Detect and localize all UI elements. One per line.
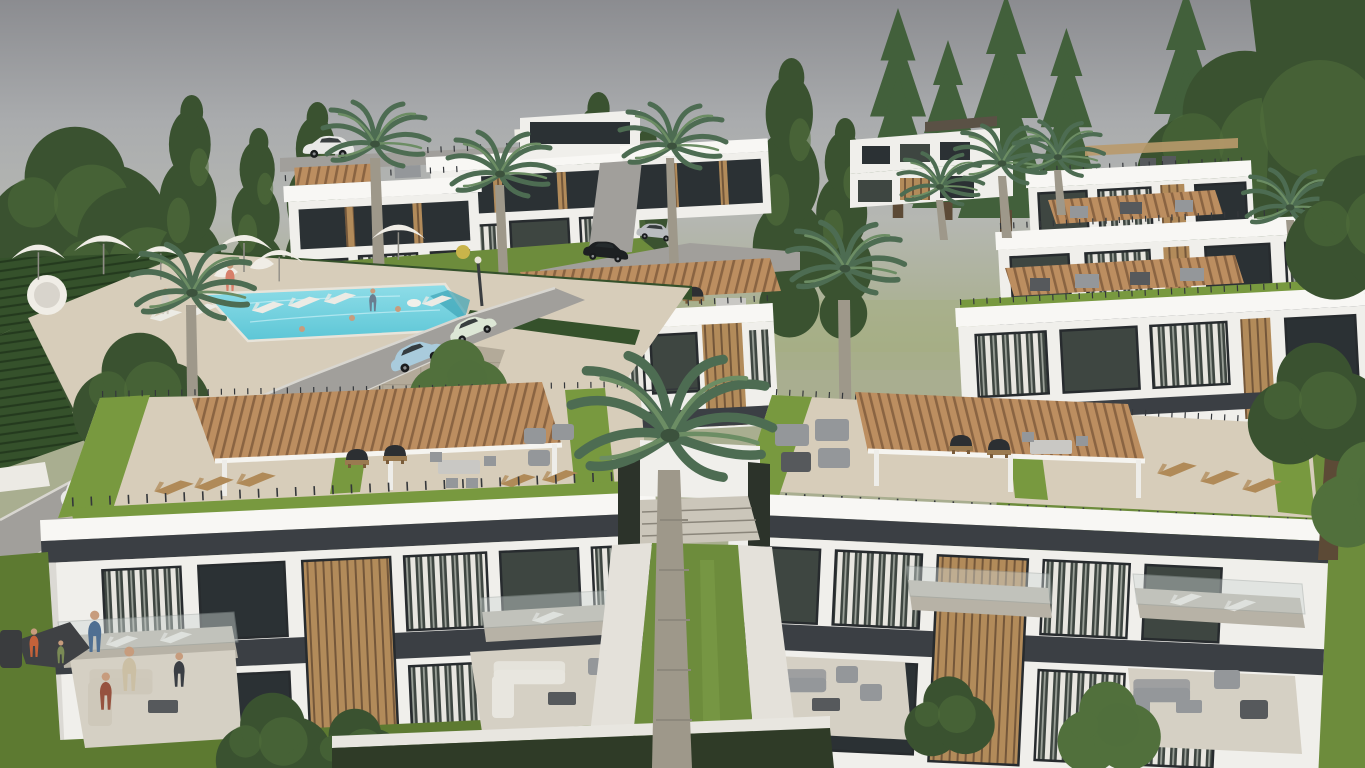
swimmer	[299, 326, 305, 332]
window	[858, 180, 892, 202]
render-viewport: Aerial 3D architectural rendering of a h…	[0, 0, 1365, 768]
ottoman	[1176, 700, 1202, 713]
terrace-sofa	[815, 419, 849, 441]
window	[976, 331, 1049, 397]
terrace-chair	[466, 478, 478, 488]
terrace-chair	[430, 452, 442, 462]
curtained-window	[1040, 560, 1129, 638]
pergola-post	[1136, 460, 1141, 498]
pergola-post	[874, 450, 879, 486]
patio-armchair	[860, 684, 882, 701]
terrace-armchair	[781, 452, 811, 472]
terrace-armchair	[524, 428, 546, 444]
terrace-furniture	[1180, 268, 1204, 281]
villa-4	[620, 138, 772, 221]
terrace-furniture	[1075, 274, 1099, 288]
slatted-wall	[618, 458, 640, 548]
architectural-render	[0, 0, 1365, 768]
patio-sofa	[492, 676, 514, 718]
patio-armchair	[1240, 700, 1268, 719]
terrace-table	[1030, 440, 1072, 454]
curtained-window	[833, 551, 922, 629]
garden-chair	[0, 630, 22, 668]
left-patio	[70, 647, 242, 748]
window	[1060, 327, 1139, 393]
patio-armchair	[1214, 670, 1240, 689]
terrace-chair	[446, 478, 458, 488]
terrace-chair	[484, 456, 496, 466]
curtained-window	[404, 553, 489, 631]
terrace-furniture	[1120, 202, 1142, 214]
terrace-armchair	[552, 424, 574, 440]
swimmer	[395, 306, 401, 312]
foreground-right-building	[718, 392, 1330, 768]
terrace-furniture	[1130, 272, 1150, 285]
terrace-furniture	[1030, 278, 1050, 291]
window	[1150, 322, 1229, 388]
coffee-table	[812, 698, 840, 711]
terrace-chair	[1022, 432, 1034, 442]
coffee-table	[548, 692, 576, 705]
foreground-left-building	[0, 382, 668, 768]
daybed-cushion	[34, 282, 60, 308]
swimmer	[349, 315, 355, 321]
terrace-chair	[1076, 436, 1088, 446]
pergola-post	[1008, 454, 1013, 492]
terrace-sofa	[775, 424, 809, 446]
terrace-furniture	[1175, 200, 1193, 212]
pool-float	[407, 299, 421, 307]
street-lamp-head	[475, 257, 482, 264]
terrace-armchair	[528, 450, 550, 466]
window-band	[530, 122, 630, 144]
terrace-armchair	[818, 448, 850, 468]
window	[862, 146, 890, 164]
coffee-table	[148, 700, 178, 713]
terrace-furniture	[1070, 206, 1088, 218]
terrace-table	[438, 460, 480, 474]
yellow-shrub	[456, 245, 470, 259]
patio-armchair	[836, 666, 858, 683]
